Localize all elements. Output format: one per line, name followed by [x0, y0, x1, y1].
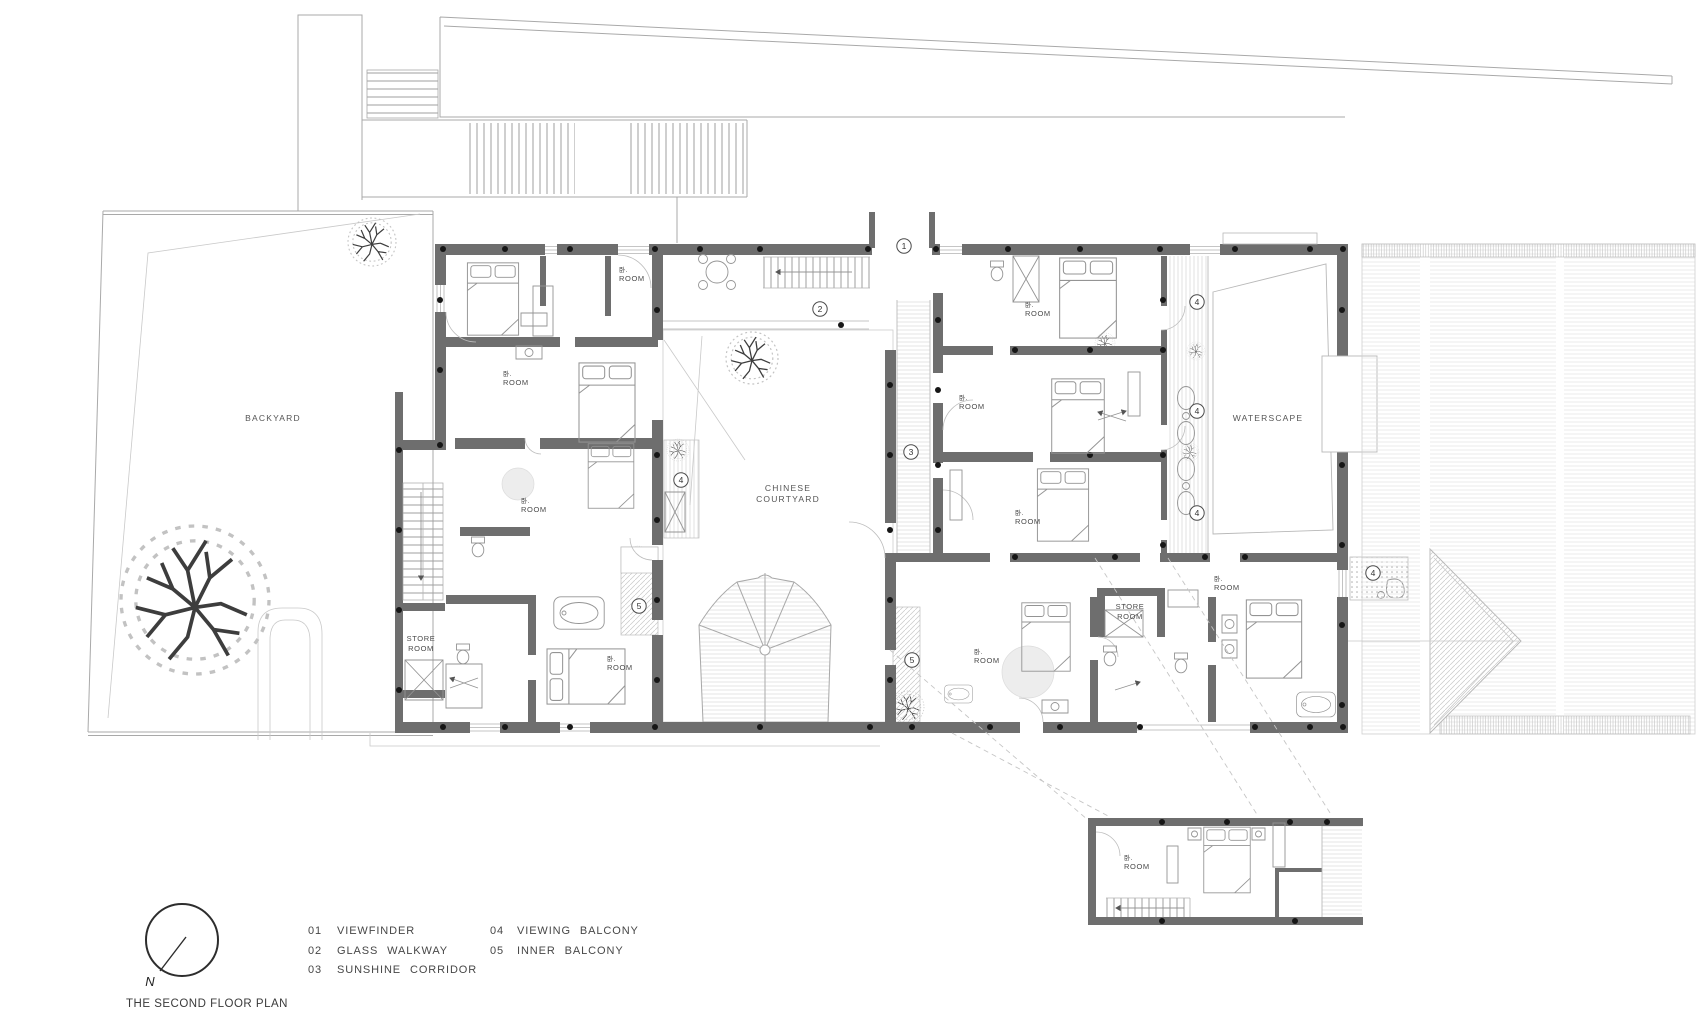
waterscape	[1213, 233, 1377, 534]
legend-label: VIEWING BALCONY	[517, 925, 639, 937]
svg-text:5: 5	[910, 655, 915, 665]
svg-text:ROOM: ROOM	[607, 663, 633, 672]
rug-round	[1002, 646, 1054, 698]
svg-text:卧.: 卧.	[1124, 854, 1133, 862]
svg-text:STORE: STORE	[407, 634, 436, 643]
marker-02-glass-walkway: 2	[813, 302, 827, 316]
marker-04-viewing-balcony-d: 4	[674, 473, 688, 487]
dining-table	[706, 261, 728, 283]
floor-plan-sheet: BACKYARD CHINESE COURTYARD WATERSCAPE ST…	[0, 0, 1700, 1020]
svg-text:ROOM: ROOM	[619, 274, 645, 283]
courtyard-label: CHINESE COURTYARD	[756, 483, 820, 504]
legend-num: 04	[490, 925, 504, 937]
toilet	[1175, 653, 1188, 673]
room-label: 卧. ROOM	[521, 497, 547, 514]
toilet	[991, 261, 1004, 281]
compass: N	[145, 904, 218, 989]
svg-text:CHINESE: CHINESE	[765, 483, 811, 493]
room-label: 卧. ROOM	[974, 648, 1000, 665]
legend-label: SUNSHINE CORRIDOR	[337, 964, 477, 976]
waterscape-label: WATERSCAPE	[1233, 413, 1304, 423]
room-label: 卧. ROOM	[1015, 509, 1041, 526]
floor-plan-drawing: BACKYARD CHINESE COURTYARD WATERSCAPE ST…	[0, 0, 1700, 1020]
bathtub	[1297, 692, 1336, 717]
bed	[467, 263, 518, 335]
svg-text:卧.: 卧.	[1214, 575, 1223, 583]
svg-text:ROOM: ROOM	[1124, 862, 1150, 871]
room-label: 卧. ROOM	[1025, 301, 1051, 318]
toilet	[457, 644, 470, 664]
waterfall-channel	[1223, 233, 1317, 244]
compass-circle	[146, 904, 218, 976]
store-room-label-left: STORE ROOM	[407, 634, 436, 653]
svg-text:4: 4	[1195, 297, 1200, 307]
marker-04-viewing-balcony-e: 4	[1366, 566, 1380, 580]
svg-text:4: 4	[1371, 568, 1376, 578]
svg-text:卧.: 卧.	[503, 370, 512, 378]
compass-needle	[160, 937, 186, 971]
projection-lines	[890, 558, 1332, 820]
stairs-left-wing	[403, 483, 443, 600]
roof-outline-top	[298, 15, 1672, 243]
bed	[1037, 469, 1088, 541]
store-room-label-right: STORE ROOM	[1116, 602, 1145, 621]
page-title: THE SECOND FLOOR PLAN	[126, 998, 288, 1010]
room-label: 卧. ROOM	[1124, 854, 1150, 871]
rug-round	[502, 468, 534, 500]
bed	[1060, 258, 1117, 338]
room-label: 卧. ROOM	[619, 266, 645, 283]
svg-text:卧.: 卧.	[1015, 509, 1024, 517]
svg-text:5: 5	[637, 601, 642, 611]
marker-05-inner-balcony-a: 5	[632, 599, 646, 613]
svg-text:ROOM: ROOM	[1015, 517, 1041, 526]
svg-text:4: 4	[679, 475, 684, 485]
bathtub	[554, 597, 604, 629]
room-label: 卧. ROOM	[959, 394, 985, 411]
room-label: 卧. ROOM	[503, 370, 529, 387]
bed	[588, 444, 634, 508]
legend-num: 01	[308, 925, 322, 937]
svg-text:卧.: 卧.	[959, 394, 968, 402]
roof-railing-left	[468, 123, 575, 194]
bed	[579, 363, 635, 442]
closet	[1167, 846, 1178, 883]
bed	[1052, 379, 1105, 453]
svg-text:卧.: 卧.	[974, 648, 983, 656]
toilet	[472, 537, 485, 557]
marker-01-viewfinder: 1	[897, 239, 911, 253]
legend-num: 03	[308, 964, 322, 976]
detached-stairs	[1106, 898, 1190, 917]
detached-deck	[1322, 826, 1362, 917]
legend-label: GLASS WALKWAY	[337, 945, 448, 957]
cabinet	[1128, 372, 1140, 416]
north-icon: N	[145, 974, 155, 989]
legend-num: 05	[490, 945, 504, 957]
neighbor-roof	[1348, 244, 1695, 734]
room-label: 卧. ROOM	[1214, 575, 1240, 592]
toilet	[1104, 646, 1117, 666]
tree-backyard-large	[121, 526, 269, 674]
legend: 01 VIEWFINDER 02 GLASS WALKWAY 03 SUNSHI…	[308, 925, 639, 976]
marker-04-viewing-balcony-b: 4	[1190, 404, 1204, 418]
svg-text:ROOM: ROOM	[521, 505, 547, 514]
svg-text:STORE: STORE	[1116, 602, 1145, 611]
marker-03-sunshine-corridor: 3	[904, 445, 918, 459]
stair-to-viewfinder	[763, 257, 870, 288]
svg-text:1: 1	[902, 241, 907, 251]
shower	[446, 664, 482, 708]
svg-text:卧.: 卧.	[607, 655, 616, 663]
glass-walkway	[663, 257, 870, 329]
svg-text:ROOM: ROOM	[408, 644, 434, 653]
svg-text:ROOM: ROOM	[1214, 583, 1240, 592]
tree-courtyard	[726, 332, 778, 384]
bed	[1246, 600, 1301, 678]
svg-text:3: 3	[909, 447, 914, 457]
room-labels: 卧. ROOM 卧. ROOM 卧. ROOM 卧. ROOM 卧. ROOM …	[503, 266, 1240, 871]
svg-text:COURTYARD: COURTYARD	[756, 494, 820, 504]
svg-text:4: 4	[1195, 406, 1200, 416]
svg-text:ROOM: ROOM	[959, 402, 985, 411]
marker-05-inner-balcony-b: 5	[905, 653, 919, 667]
room-label: 卧. ROOM	[607, 655, 633, 672]
svg-text:卧.: 卧.	[1025, 301, 1034, 309]
shower	[1013, 256, 1039, 302]
svg-text:卧.: 卧.	[521, 497, 530, 505]
svg-text:ROOM: ROOM	[503, 378, 529, 387]
svg-text:4: 4	[1195, 508, 1200, 518]
roof-railing-right	[628, 123, 747, 194]
bathtub	[944, 685, 972, 703]
marker-04-viewing-balcony-c: 4	[1190, 506, 1204, 520]
svg-text:2: 2	[818, 304, 823, 314]
backyard-label: BACKYARD	[245, 413, 301, 423]
svg-text:ROOM: ROOM	[1117, 612, 1143, 621]
roof-ladder	[367, 70, 438, 118]
bed	[1204, 827, 1250, 893]
tree-backyard-top	[348, 218, 396, 266]
legend-num: 02	[308, 945, 322, 957]
sunshine-corridor-strip	[897, 300, 930, 553]
marker-04-viewing-balcony-a: 4	[1190, 295, 1204, 309]
legend-label: INNER BALCONY	[517, 945, 624, 957]
svg-text:ROOM: ROOM	[1025, 309, 1051, 318]
svg-text:卧.: 卧.	[619, 266, 628, 274]
wardrobe	[1273, 823, 1285, 867]
svg-text:ROOM: ROOM	[974, 656, 1000, 665]
legend-label: VIEWFINDER	[337, 925, 415, 937]
